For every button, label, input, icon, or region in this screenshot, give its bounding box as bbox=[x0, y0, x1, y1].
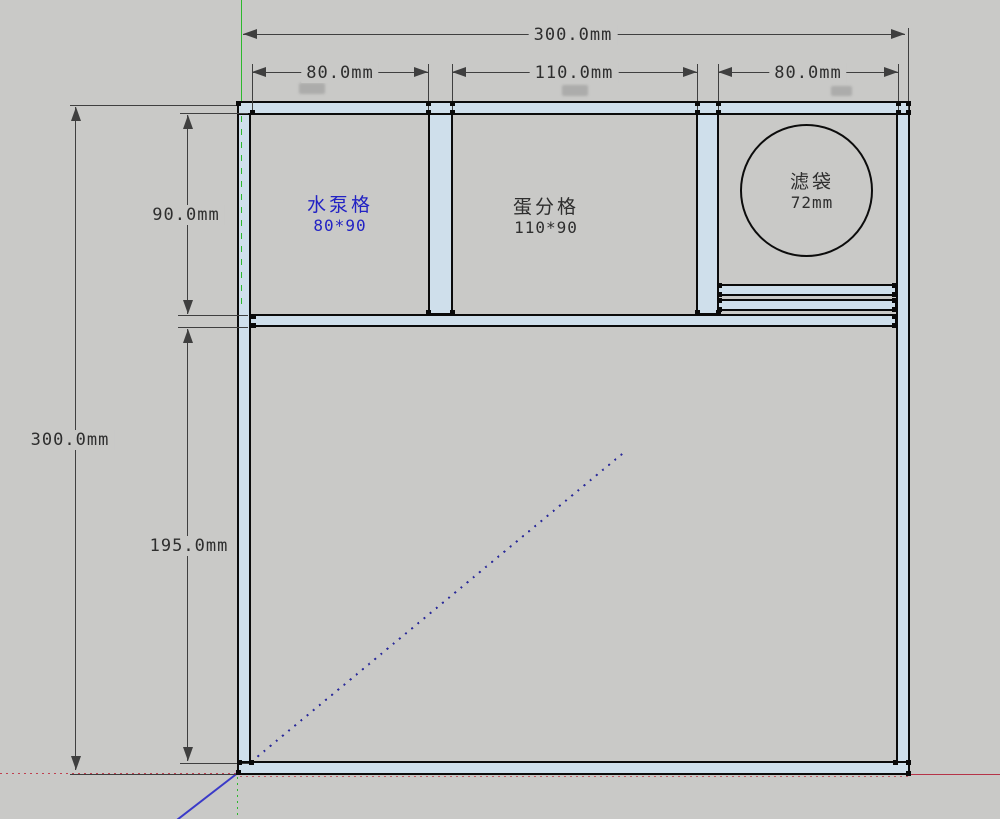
dim-arrow-left bbox=[252, 67, 266, 77]
endpoint-dot bbox=[893, 760, 898, 765]
filter-bag-label[interactable]: 滤袋 72mm bbox=[790, 171, 834, 212]
blue-axis-negative-solid bbox=[176, 771, 240, 819]
pump-compartment-label[interactable]: 水泵格 80*90 bbox=[307, 194, 373, 235]
red-axis-under-wall bbox=[240, 776, 908, 777]
dim-extension-line bbox=[70, 774, 237, 775]
blue-axis-positive-dotted bbox=[238, 451, 625, 773]
endpoint-dot bbox=[450, 110, 455, 115]
dim-label-seg3: 80.0mm bbox=[769, 63, 846, 83]
endpoint-dot bbox=[716, 101, 721, 106]
dim-arrow-down bbox=[183, 747, 193, 761]
endpoint-dot bbox=[450, 101, 455, 106]
dim-arrow-right bbox=[683, 67, 697, 77]
dim-label-height-total: 300.0mm bbox=[26, 430, 115, 450]
endpoint-dot bbox=[450, 310, 455, 315]
endpoint-dot bbox=[896, 101, 901, 106]
dim-extension-line bbox=[70, 105, 238, 106]
endpoint-dot bbox=[695, 101, 700, 106]
ghost-text-mark bbox=[562, 85, 588, 96]
ghost-text-mark bbox=[831, 86, 852, 96]
dim-arrow-down bbox=[183, 300, 193, 314]
green-axis-hidden-segment bbox=[241, 116, 242, 311]
endpoint-dot bbox=[249, 760, 254, 765]
dim-arrow-up bbox=[183, 329, 193, 343]
endpoint-dot bbox=[906, 110, 911, 115]
dim-arrow-down bbox=[71, 756, 81, 770]
endpoint-dot bbox=[892, 307, 897, 312]
endpoint-dot bbox=[717, 307, 722, 312]
dim-arrow-left bbox=[452, 67, 466, 77]
green-axis-negative bbox=[237, 777, 238, 819]
endpoint-dot bbox=[906, 771, 911, 776]
dim-label-seg2: 110.0mm bbox=[530, 63, 619, 83]
skimmer-name: 蛋分格 bbox=[513, 196, 579, 218]
red-axis-positive bbox=[910, 774, 1000, 775]
axes-origin-point bbox=[236, 770, 241, 775]
endpoint-dot bbox=[717, 292, 722, 297]
dim-label-seg1: 80.0mm bbox=[301, 63, 378, 83]
endpoint-dot bbox=[717, 298, 722, 303]
dim-arrow-right bbox=[891, 29, 905, 39]
dim-extension-line bbox=[178, 315, 248, 316]
wall-top[interactable] bbox=[237, 101, 910, 115]
wall-right[interactable] bbox=[896, 101, 910, 775]
endpoint-dot bbox=[717, 283, 722, 288]
endpoint-dot bbox=[695, 110, 700, 115]
pump-size: 80*90 bbox=[307, 216, 373, 235]
divider-pump-skimmer[interactable] bbox=[428, 113, 453, 315]
dim-label-lower: 195.0mm bbox=[145, 536, 234, 556]
endpoint-dot bbox=[892, 292, 897, 297]
filter-bar-upper[interactable] bbox=[717, 284, 897, 296]
dim-label-width-total: 300.0mm bbox=[529, 25, 618, 45]
wall-bottom[interactable] bbox=[237, 761, 910, 775]
endpoint-dot bbox=[896, 110, 901, 115]
endpoint-dot bbox=[892, 298, 897, 303]
ghost-text-mark bbox=[299, 83, 325, 94]
endpoint-dot bbox=[906, 760, 911, 765]
dim-arrow-left bbox=[243, 29, 257, 39]
endpoint-dot bbox=[892, 283, 897, 288]
endpoint-dot bbox=[892, 314, 897, 319]
endpoint-dot bbox=[237, 760, 242, 765]
endpoint-dot bbox=[251, 314, 256, 319]
endpoint-dot bbox=[250, 110, 255, 115]
endpoint-dot bbox=[695, 310, 700, 315]
pump-name: 水泵格 bbox=[307, 194, 373, 216]
dim-arrow-up bbox=[183, 115, 193, 129]
dim-arrow-right bbox=[414, 67, 428, 77]
skimmer-size: 110*90 bbox=[513, 218, 579, 237]
sketchup-drawing-canvas: 水泵格 80*90 蛋分格 110*90 滤袋 72mm 300.0mm 80.… bbox=[0, 0, 1000, 819]
endpoint-dot bbox=[426, 101, 431, 106]
shelf-horizontal[interactable] bbox=[249, 314, 897, 327]
filter-bar-lower[interactable] bbox=[717, 299, 897, 311]
dim-arrow-right bbox=[884, 67, 898, 77]
endpoint-dot bbox=[892, 323, 897, 328]
endpoint-dot bbox=[426, 310, 431, 315]
endpoint-dot bbox=[716, 110, 721, 115]
dim-extension-line bbox=[178, 327, 248, 328]
filter-bag-name: 滤袋 bbox=[790, 171, 834, 193]
endpoint-dot bbox=[251, 323, 256, 328]
endpoint-dot bbox=[236, 101, 241, 106]
endpoint-dot bbox=[906, 101, 911, 106]
endpoint-dot bbox=[426, 110, 431, 115]
green-axis-line bbox=[241, 0, 242, 101]
dim-arrow-left bbox=[718, 67, 732, 77]
skimmer-compartment-label[interactable]: 蛋分格 110*90 bbox=[513, 196, 579, 237]
filter-bag-size: 72mm bbox=[790, 193, 834, 212]
wall-left[interactable] bbox=[237, 101, 251, 775]
dim-arrow-up bbox=[71, 107, 81, 121]
divider-skimmer-filter[interactable] bbox=[696, 113, 719, 315]
dim-extension-line bbox=[180, 113, 248, 114]
dim-label-upper: 90.0mm bbox=[147, 205, 224, 225]
